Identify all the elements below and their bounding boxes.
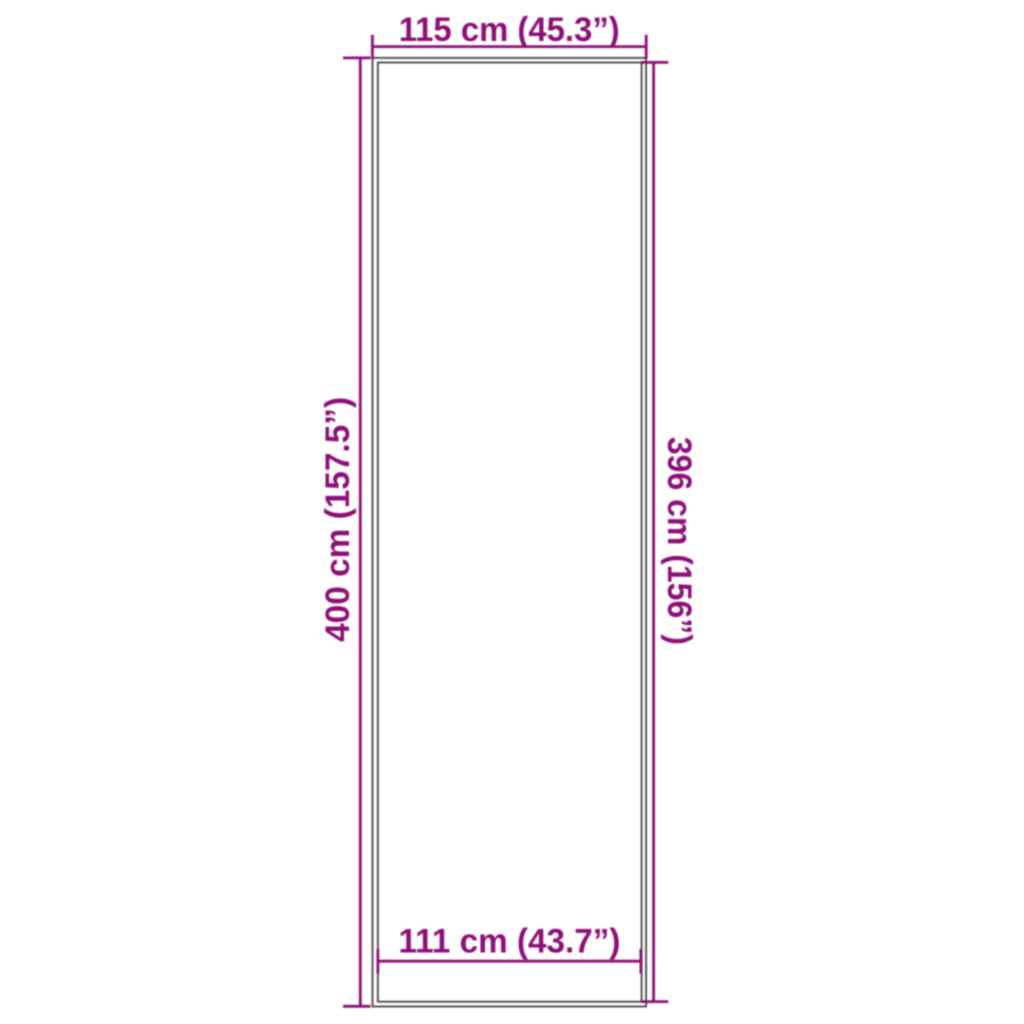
svg-text:400 cm (157.5”): 400 cm (157.5”) xyxy=(319,397,357,642)
svg-text:111 cm (43.7”): 111 cm (43.7”) xyxy=(399,922,621,960)
svg-text:115 cm (45.3”): 115 cm (45.3”) xyxy=(399,11,620,49)
svg-text:396 cm (156”): 396 cm (156”) xyxy=(660,437,698,645)
